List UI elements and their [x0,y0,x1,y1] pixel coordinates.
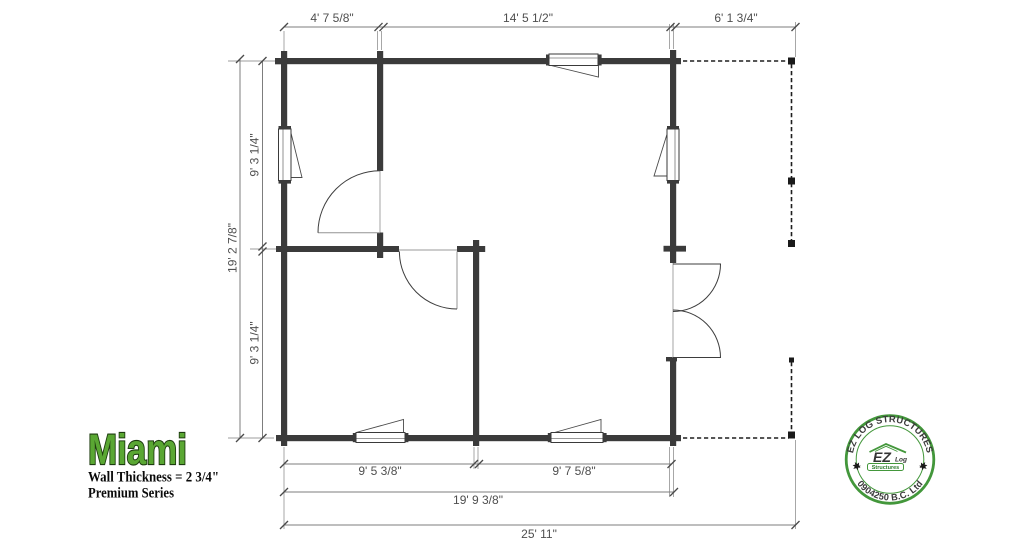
svg-text:9' 3 1/4": 9' 3 1/4" [248,321,262,364]
svg-text:25' 11": 25' 11" [521,527,557,541]
svg-text:19' 9 3/8": 19' 9 3/8" [453,493,503,507]
svg-text:Miami: Miami [88,426,187,474]
svg-text:19' 2 7/8": 19' 2 7/8" [226,223,240,273]
svg-text:9' 7 5/8": 9' 7 5/8" [552,464,595,478]
svg-text:Log: Log [895,457,907,464]
svg-text:6' 1 3/4": 6' 1 3/4" [714,11,757,25]
svg-text:Structures: Structures [872,465,900,471]
svg-text:9' 3 1/4": 9' 3 1/4" [248,133,262,176]
svg-text:4' 7 5/8": 4' 7 5/8" [310,11,353,25]
svg-text:14' 5 1/2": 14' 5 1/2" [503,11,553,25]
svg-text:Premium Series: Premium Series [88,486,174,502]
svg-text:9' 5 3/8": 9' 5 3/8" [358,464,401,478]
svg-text:EZ: EZ [873,449,891,465]
svg-text:Wall Thickness = 2 3/4": Wall Thickness = 2 3/4" [88,470,219,486]
